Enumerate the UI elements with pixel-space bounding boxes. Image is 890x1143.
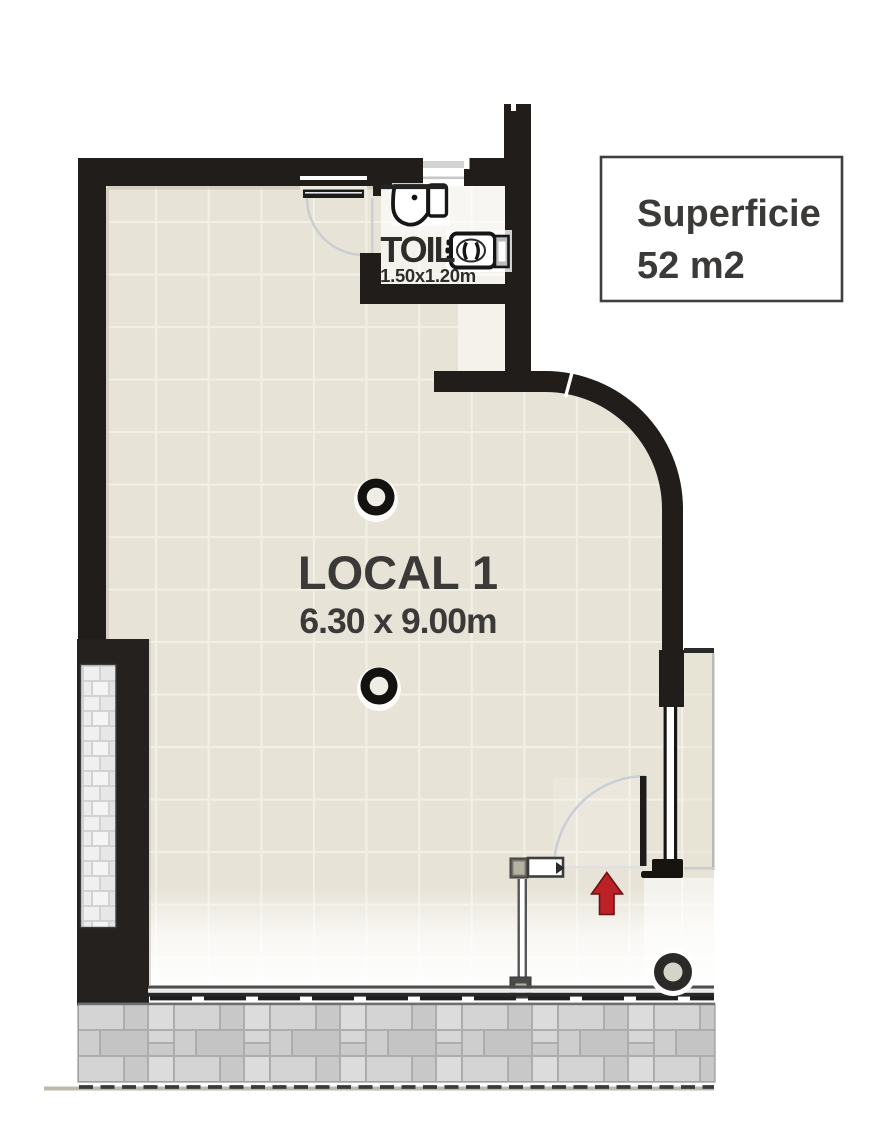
- svg-text:TOIL: TOIL: [380, 229, 454, 270]
- svg-text:LOCAL 1: LOCAL 1: [298, 546, 498, 599]
- svg-text:52 m2: 52 m2: [637, 245, 745, 287]
- svg-text:1.50x1.20m: 1.50x1.20m: [380, 265, 476, 286]
- svg-text:Superficie: Superficie: [637, 193, 821, 235]
- svg-text:6.30 x 9.00m: 6.30 x 9.00m: [299, 601, 496, 641]
